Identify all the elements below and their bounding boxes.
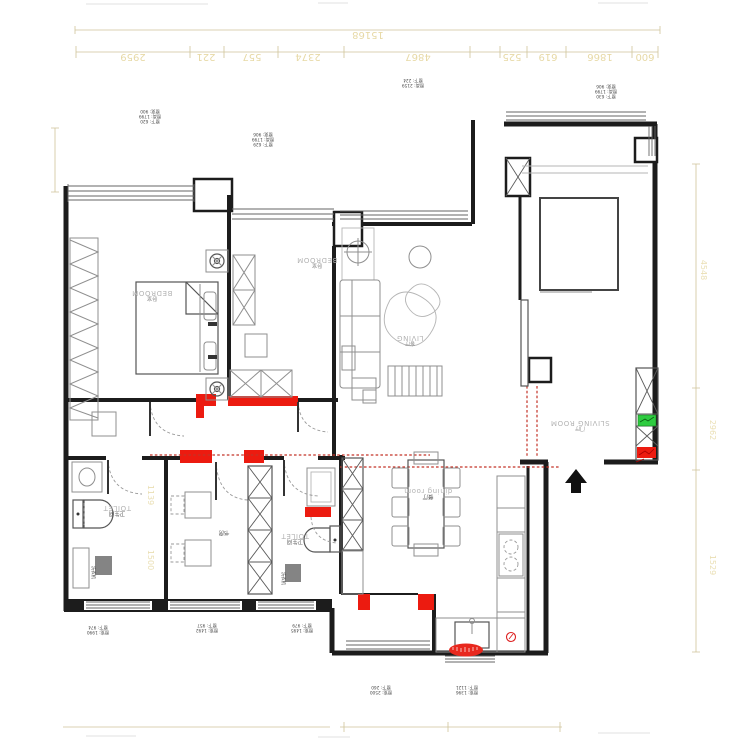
room-label-zh: 卫生间 <box>287 538 304 546</box>
storage-column <box>248 466 272 594</box>
toilet1: 洗衣机 TOILET 卫生间 <box>72 460 142 588</box>
round-table <box>409 246 431 268</box>
dim-inner: 1500 <box>146 550 155 570</box>
window-note-line: 窗宽: 1492 <box>196 627 219 634</box>
red-dashed-wall <box>527 386 537 456</box>
lamp-icon <box>210 382 224 396</box>
room-label-toilet1: TOILET 卫生间 <box>103 504 132 518</box>
seat <box>185 492 211 518</box>
cooktop <box>499 534 523 576</box>
chair <box>414 452 438 464</box>
room-label-entry: SLIVING ROOM 门厅 <box>550 419 609 432</box>
dim-inner: 1139 <box>146 485 155 505</box>
dim-top: 1866 <box>587 51 612 62</box>
sink <box>455 619 489 649</box>
toilet2: 洗衣机 TOILET 卫生间 <box>280 460 340 586</box>
cushion <box>208 322 217 326</box>
dim-top: 4867 <box>405 51 430 62</box>
bench-cabinet <box>230 370 292 397</box>
wardrobe-hatch <box>70 240 98 418</box>
cabinet <box>363 390 376 403</box>
entry: SLIVING ROOM 门厅 <box>550 368 658 493</box>
pillar <box>635 138 657 162</box>
red-wall-segment <box>418 594 434 610</box>
wall-stub <box>529 358 551 382</box>
dim-right: 2962 <box>708 420 717 440</box>
door-swing <box>108 460 142 494</box>
door-swing <box>311 517 337 543</box>
vanity <box>72 462 102 492</box>
entrance-arrow-icon <box>565 469 587 493</box>
study: 书房 <box>171 462 272 594</box>
dim-top: 221 <box>196 51 215 62</box>
cabinet <box>342 346 355 370</box>
window-note-line: 窗宽: 1396 <box>456 689 479 696</box>
window-note-line: 窗宽: 1990 <box>87 629 110 636</box>
nightstand <box>245 334 267 357</box>
window-note-line: 窗宽: 1495 <box>291 627 314 634</box>
tall-cabinet <box>342 458 363 594</box>
chair <box>443 468 460 488</box>
chair <box>443 526 460 546</box>
washing-machine <box>95 556 112 575</box>
shower-tray <box>311 472 331 502</box>
column <box>506 158 530 196</box>
chair <box>392 468 409 488</box>
console-table <box>92 412 116 436</box>
rug <box>405 284 440 317</box>
window-note-line: 窗下: 630 <box>596 93 616 100</box>
lamp-icon <box>210 254 224 268</box>
kitchen <box>436 476 525 657</box>
sliding-door <box>521 300 528 386</box>
chair <box>392 497 409 517</box>
room-label-zh: 卧室 <box>147 295 157 302</box>
washer-label: 洗衣机 <box>90 566 97 580</box>
dim-right: 4548 <box>699 260 708 280</box>
dim-total: 15168 <box>352 29 384 40</box>
red-circle-mark <box>507 633 516 642</box>
corridor <box>92 412 116 436</box>
window-note-line: 窗高: 2159 <box>402 82 425 89</box>
red-stamp <box>449 644 483 657</box>
sofa <box>340 280 380 388</box>
frame-marks <box>86 3 650 737</box>
dim-right: 1529 <box>708 555 717 575</box>
room-label-zh: 门厅 <box>575 425 585 432</box>
dim-top: 525 <box>502 51 521 62</box>
living-room: LIVING 客厅 <box>340 228 442 403</box>
blanket-fold <box>186 282 218 314</box>
seat-ghost <box>171 496 184 514</box>
door-swing <box>216 462 248 500</box>
dim-top: 2374 <box>295 51 320 62</box>
counter <box>497 476 525 652</box>
seat <box>185 540 211 566</box>
dim-top: 600 <box>635 51 654 62</box>
closet <box>522 166 648 173</box>
wardrobe <box>233 255 255 325</box>
dim-top: 619 <box>538 51 557 62</box>
chair <box>392 526 409 546</box>
dining-room: dining room 餐厅 <box>342 452 460 594</box>
pillar <box>194 179 232 211</box>
window-note-line: 窗下: 629 <box>253 141 273 148</box>
room-label-dining: dining room 餐厅 <box>404 487 453 501</box>
door-swing <box>298 402 328 432</box>
floor-plan: 15168 2959 221 557 2374 4867 525 619 186… <box>0 0 740 740</box>
room-label-bedroom2: BEDROOM 卧室 <box>297 256 338 269</box>
door-swing <box>150 402 184 436</box>
chair <box>414 544 438 556</box>
seat-ghost <box>171 544 184 562</box>
bed <box>540 198 618 290</box>
cushion <box>208 355 217 359</box>
red-door-lintel <box>305 507 331 517</box>
room-label-zh: 卧室 <box>312 262 322 269</box>
room-label-zh: 餐厅 <box>422 493 434 501</box>
window-note-line: 窗下: 620 <box>140 118 160 125</box>
windows <box>68 112 655 662</box>
window-note-line: 窗宽: 2500 <box>370 689 393 696</box>
red-wall-segment <box>358 594 370 610</box>
tv-console <box>388 366 442 396</box>
room-label-bedroom1: BEDROOM 卧室 <box>132 289 173 302</box>
room-label-zh: 客厅 <box>405 340 415 347</box>
cabinet <box>352 378 376 400</box>
dining-table <box>408 460 444 548</box>
master-room <box>521 166 648 386</box>
chair <box>443 497 460 517</box>
dim-top: 2959 <box>120 51 145 62</box>
basin <box>79 468 95 486</box>
room-label-study: 书房 <box>218 529 230 537</box>
dim-top: 557 <box>242 51 261 62</box>
bedroom1: BEDROOM 卧室 <box>70 238 228 436</box>
red-door-lintel <box>180 450 212 463</box>
door-swing <box>284 460 318 496</box>
washer-label: 洗衣机 <box>280 572 287 586</box>
washing-machine <box>285 564 301 582</box>
room-label-toilet2: TOILET 卫生间 <box>281 532 310 546</box>
room-label-living: LIVING 客厅 <box>396 334 423 347</box>
room-label-zh: 卫生间 <box>109 510 126 518</box>
red-door-lintel <box>244 450 264 463</box>
cabinet <box>73 548 89 588</box>
